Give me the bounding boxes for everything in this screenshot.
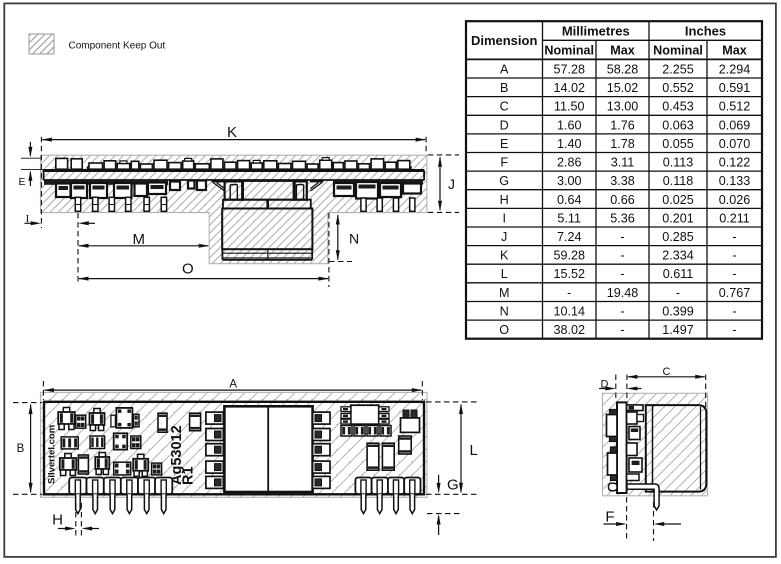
svg-text:A: A bbox=[500, 62, 509, 76]
svg-text:Dimension: Dimension bbox=[471, 33, 538, 48]
svg-text:-: - bbox=[732, 323, 736, 337]
svg-text:F: F bbox=[605, 509, 614, 526]
svg-text:E: E bbox=[18, 176, 25, 188]
svg-text:Silvertel.com: Silvertel.com bbox=[47, 425, 58, 484]
svg-text:13.00: 13.00 bbox=[607, 100, 639, 114]
svg-text:-: - bbox=[732, 249, 736, 263]
svg-text:O: O bbox=[499, 323, 509, 337]
svg-text:E: E bbox=[500, 137, 508, 151]
svg-text:-: - bbox=[620, 267, 624, 281]
svg-text:J: J bbox=[501, 230, 507, 244]
svg-text:5.11: 5.11 bbox=[557, 211, 581, 225]
svg-text:14.02: 14.02 bbox=[553, 81, 585, 95]
svg-text:I: I bbox=[26, 213, 30, 225]
svg-text:0.069: 0.069 bbox=[719, 118, 751, 132]
svg-text:0.070: 0.070 bbox=[719, 137, 751, 151]
svg-text:0.063: 0.063 bbox=[662, 118, 694, 132]
svg-text:5.36: 5.36 bbox=[610, 211, 635, 225]
svg-text:0.055: 0.055 bbox=[662, 137, 694, 151]
svg-text:B: B bbox=[500, 81, 508, 95]
svg-text:D: D bbox=[500, 118, 509, 132]
svg-text:Max: Max bbox=[610, 44, 635, 58]
svg-text:-: - bbox=[620, 305, 624, 319]
svg-text:Nominal: Nominal bbox=[544, 44, 594, 58]
svg-text:F: F bbox=[500, 156, 508, 170]
svg-text:1.78: 1.78 bbox=[610, 137, 635, 151]
svg-text:0.113: 0.113 bbox=[663, 156, 694, 170]
svg-text:-: - bbox=[620, 230, 624, 244]
svg-text:M: M bbox=[132, 231, 145, 248]
svg-text:Component Keep Out: Component Keep Out bbox=[69, 41, 166, 52]
svg-text:0.122: 0.122 bbox=[719, 156, 751, 170]
svg-text:0.512: 0.512 bbox=[719, 100, 751, 114]
svg-text:0.211: 0.211 bbox=[719, 211, 750, 225]
svg-text:0.026: 0.026 bbox=[719, 193, 751, 207]
svg-text:-: - bbox=[620, 249, 624, 263]
svg-text:10.14: 10.14 bbox=[553, 305, 585, 319]
svg-text:0.453: 0.453 bbox=[662, 100, 694, 114]
svg-text:1.60: 1.60 bbox=[557, 118, 582, 132]
svg-text:15.52: 15.52 bbox=[553, 267, 585, 281]
svg-text:0.025: 0.025 bbox=[662, 193, 694, 207]
svg-text:H: H bbox=[500, 193, 509, 207]
svg-text:0.611: 0.611 bbox=[663, 267, 694, 281]
svg-text:2.294: 2.294 bbox=[719, 62, 751, 76]
svg-text:0.133: 0.133 bbox=[719, 174, 751, 188]
svg-text:J: J bbox=[448, 176, 455, 192]
svg-text:G: G bbox=[447, 477, 459, 494]
svg-text:1.40: 1.40 bbox=[557, 137, 582, 151]
svg-text:58.28: 58.28 bbox=[607, 62, 639, 76]
svg-text:2.255: 2.255 bbox=[662, 62, 694, 76]
svg-text:Millimetres: Millimetres bbox=[562, 23, 630, 38]
svg-text:M: M bbox=[499, 286, 510, 300]
svg-text:Nominal: Nominal bbox=[653, 44, 703, 58]
svg-text:-: - bbox=[620, 323, 624, 337]
svg-text:0.399: 0.399 bbox=[662, 305, 694, 319]
svg-text:L: L bbox=[470, 442, 478, 459]
svg-text:N: N bbox=[500, 305, 509, 319]
svg-text:0.66: 0.66 bbox=[610, 193, 635, 207]
svg-text:N: N bbox=[349, 231, 359, 247]
svg-text:0.591: 0.591 bbox=[719, 81, 751, 95]
svg-text:15.02: 15.02 bbox=[607, 81, 639, 95]
svg-text:K: K bbox=[227, 124, 237, 141]
svg-text:3.11: 3.11 bbox=[611, 156, 635, 170]
svg-text:H: H bbox=[52, 512, 63, 529]
svg-text:2.86: 2.86 bbox=[557, 156, 582, 170]
svg-text:-: - bbox=[567, 286, 571, 300]
svg-text:0.201: 0.201 bbox=[662, 211, 694, 225]
svg-text:1.76: 1.76 bbox=[610, 118, 635, 132]
svg-text:C: C bbox=[500, 100, 509, 114]
svg-text:19.48: 19.48 bbox=[607, 286, 639, 300]
svg-text:0.64: 0.64 bbox=[557, 193, 582, 207]
svg-text:-: - bbox=[732, 267, 736, 281]
svg-text:59.28: 59.28 bbox=[553, 249, 585, 263]
svg-text:L: L bbox=[501, 267, 508, 281]
svg-text:1.497: 1.497 bbox=[662, 323, 694, 337]
svg-text:I: I bbox=[502, 211, 506, 225]
svg-text:3.00: 3.00 bbox=[557, 174, 582, 188]
svg-text:2.334: 2.334 bbox=[662, 249, 694, 263]
svg-text:A: A bbox=[229, 379, 237, 391]
svg-text:-: - bbox=[732, 230, 736, 244]
svg-text:Inches: Inches bbox=[685, 23, 726, 38]
svg-text:0.552: 0.552 bbox=[662, 81, 694, 95]
svg-text:3.38: 3.38 bbox=[610, 174, 635, 188]
svg-text:C: C bbox=[663, 366, 671, 378]
svg-text:-: - bbox=[676, 286, 680, 300]
svg-text:0.767: 0.767 bbox=[719, 286, 751, 300]
svg-text:Max: Max bbox=[722, 44, 747, 58]
svg-text:G: G bbox=[499, 174, 509, 188]
svg-text:0.285: 0.285 bbox=[662, 230, 694, 244]
svg-text:B: B bbox=[17, 443, 25, 455]
svg-text:R1: R1 bbox=[181, 466, 197, 485]
svg-text:57.28: 57.28 bbox=[553, 62, 585, 76]
svg-text:-: - bbox=[732, 305, 736, 319]
svg-text:7.24: 7.24 bbox=[557, 230, 582, 244]
svg-text:K: K bbox=[500, 249, 509, 263]
svg-text:O: O bbox=[182, 261, 194, 278]
svg-text:0.118: 0.118 bbox=[663, 174, 694, 188]
svg-text:38.02: 38.02 bbox=[553, 323, 585, 337]
svg-text:11.50: 11.50 bbox=[554, 100, 585, 114]
